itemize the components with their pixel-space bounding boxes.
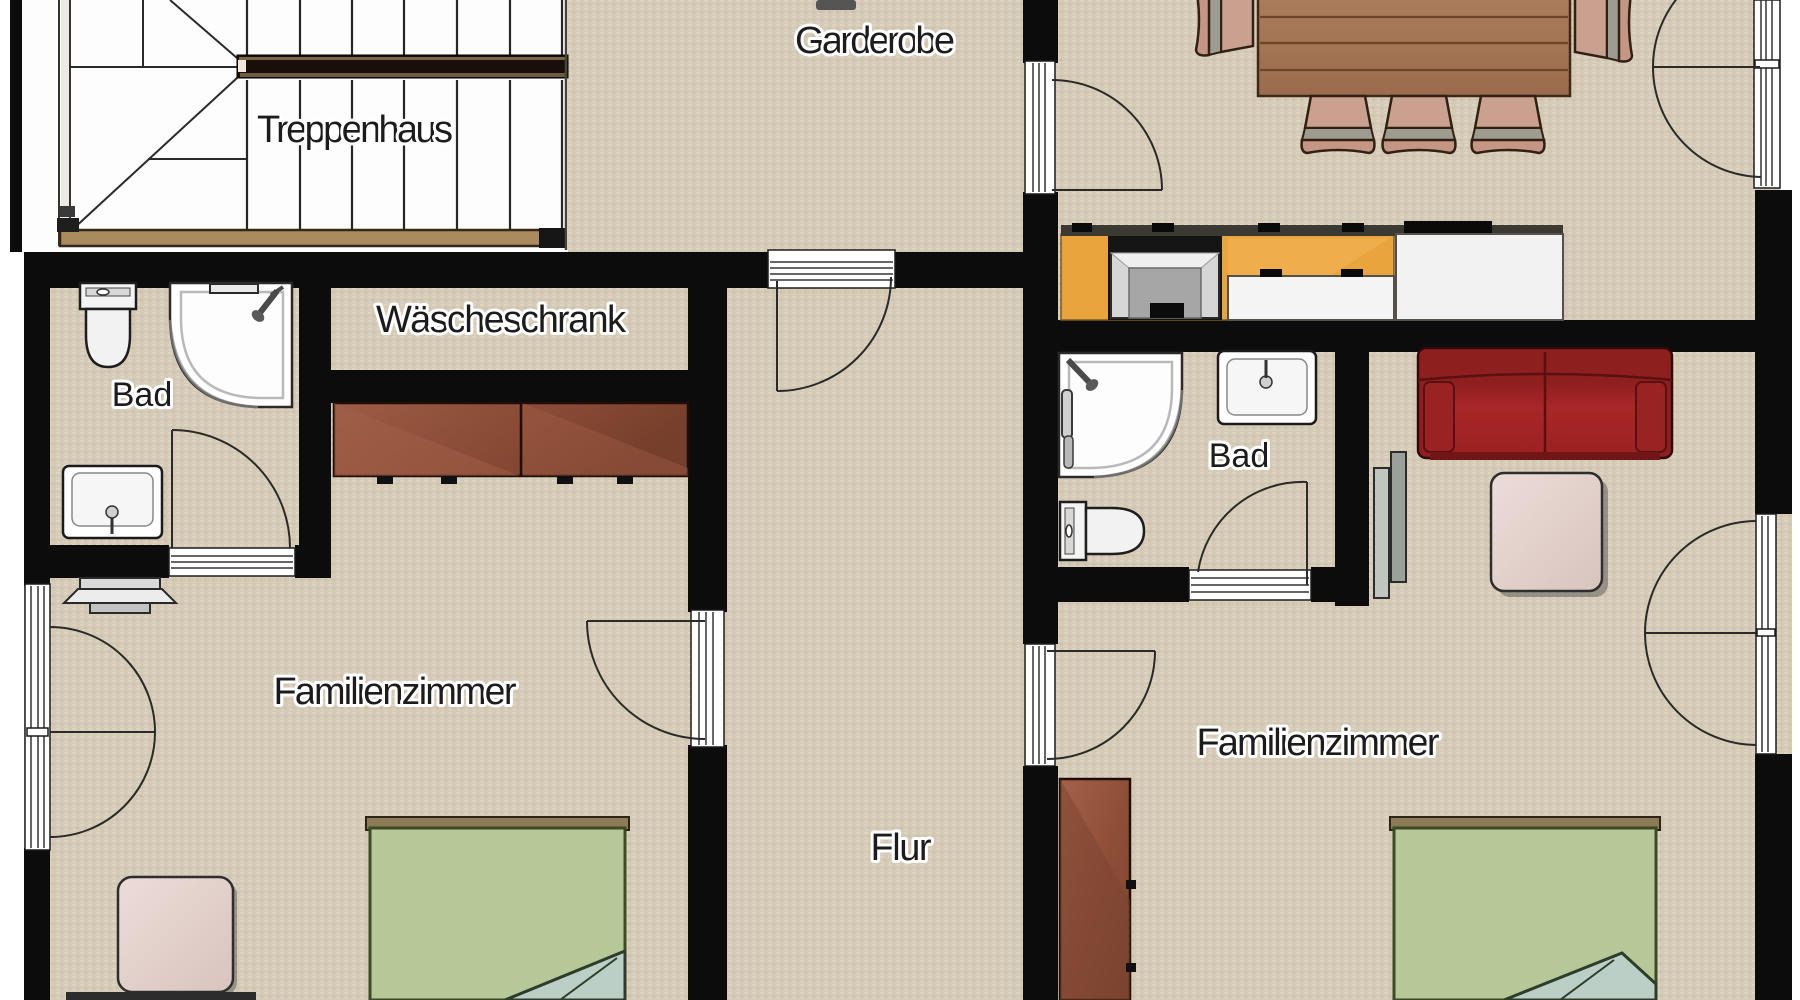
svg-text:Familienzimmer: Familienzimmer [1197, 722, 1440, 764]
svg-text:Wäscheschrank: Wäscheschrank [376, 299, 627, 341]
svg-text:Treppenhaus: Treppenhaus [257, 109, 453, 151]
svg-text:Bad: Bad [112, 376, 173, 414]
svg-text:Bad: Bad [1209, 437, 1270, 475]
svg-text:Familienzimmer: Familienzimmer [274, 671, 517, 713]
svg-text:Flur: Flur [871, 827, 932, 869]
svg-text:Garderobe: Garderobe [795, 20, 955, 62]
